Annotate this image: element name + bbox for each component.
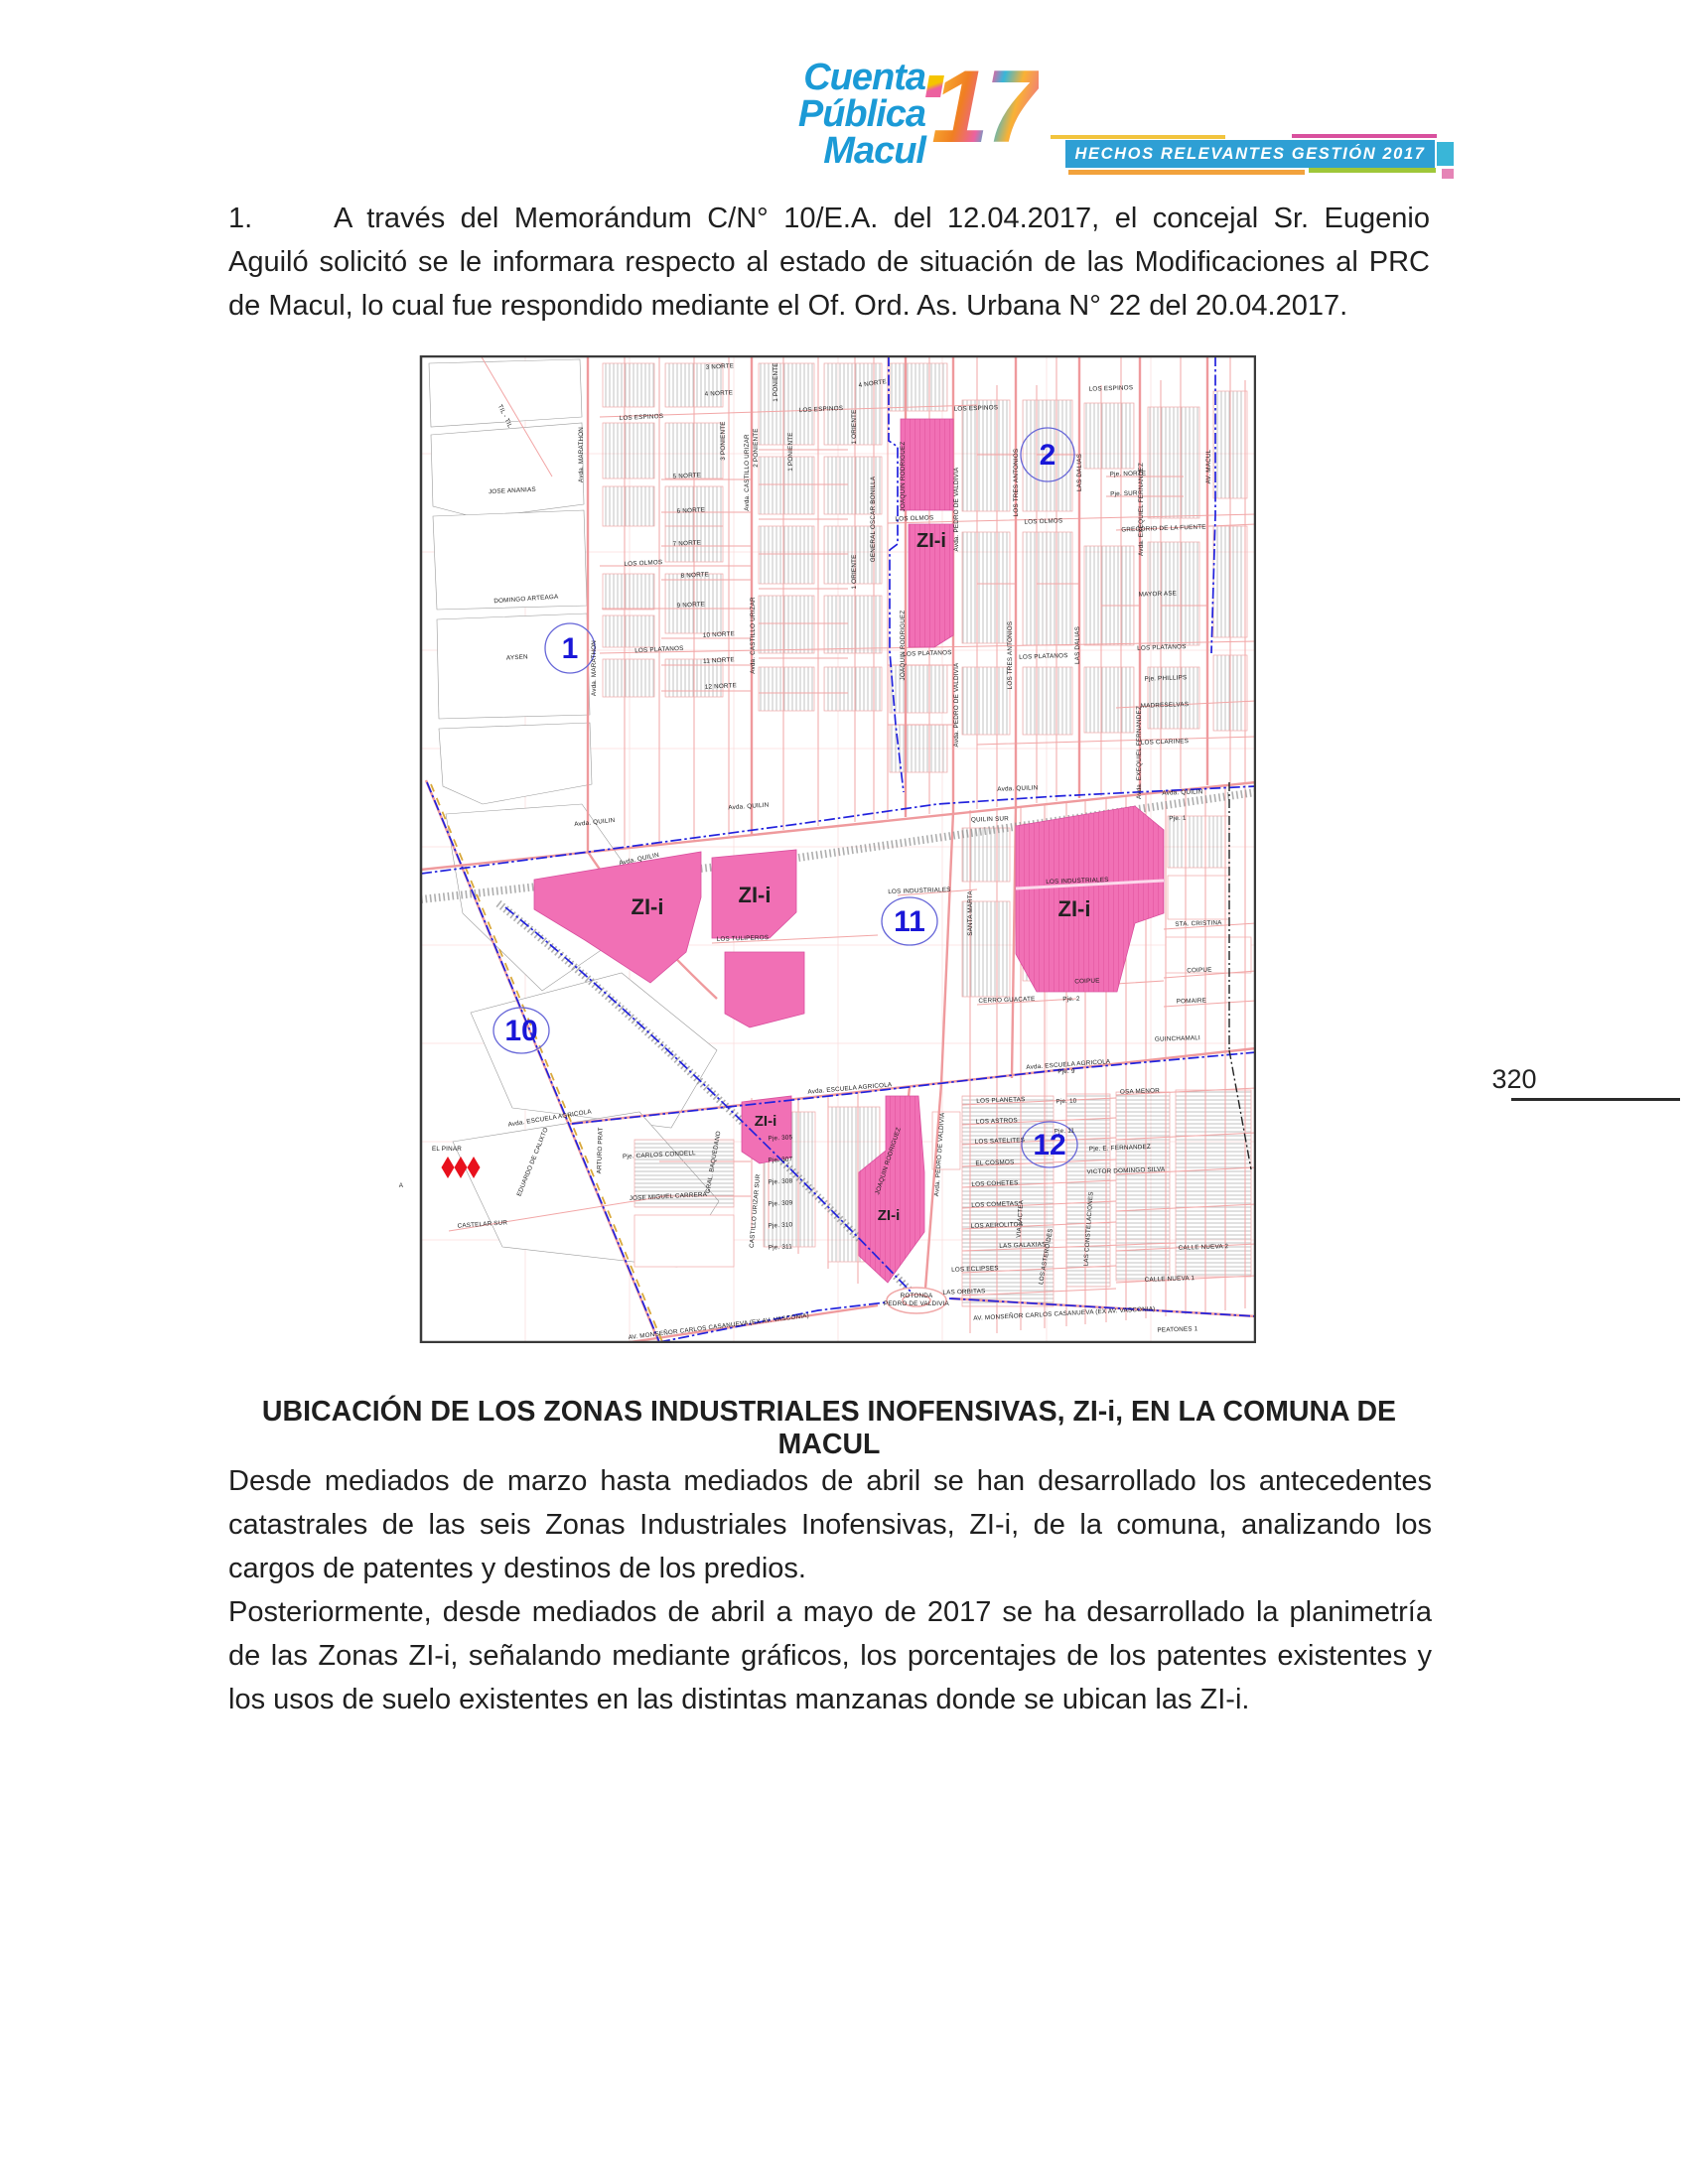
street-label: Avda. QUILIN — [997, 784, 1039, 792]
banner-accent-orange — [1068, 170, 1305, 175]
el-pinar-diamonds — [442, 1157, 481, 1178]
zone-label: ZI-i — [739, 883, 772, 907]
street-label: AV. MACUL — [1205, 449, 1212, 483]
street-label: PEATONES 1 — [1157, 1325, 1197, 1333]
street-label: Pje. SUR — [1110, 490, 1138, 498]
street-label: LAS DALIAS — [1074, 626, 1081, 664]
banner-text: HECHOS RELEVANTES GESTIÓN 2017 — [1074, 145, 1425, 164]
street-label: POMAIRE — [1177, 997, 1207, 1005]
street-label: LOS OLMOS — [1024, 517, 1062, 525]
street-label: OSA MENOR — [1120, 1087, 1160, 1095]
street-label: Avda. CASTILLO URIZAR — [750, 597, 757, 674]
street-label: 5 NORTE — [672, 472, 701, 479]
street-label: A — [399, 1182, 404, 1189]
street-label: LAS DALIAS — [1076, 454, 1083, 491]
street-label: Avda. QUILIN — [1162, 788, 1203, 796]
street-label: Pje. 2 — [1062, 996, 1080, 1004]
street-label: Avda. EXEQUIEL FERNANDEZ — [1136, 706, 1143, 799]
logo-line-2: Pública — [798, 93, 925, 135]
street-label: 1 ORIENTE — [851, 554, 858, 589]
map-caption-title: UBICACIÓN DE LOS ZONAS INDUSTRIALES INOF… — [228, 1396, 1430, 1461]
street-label: JOAQUIN RODRIGUEZ — [900, 611, 907, 681]
street-label: Pje. NORTE — [1110, 470, 1147, 478]
street-label: GENERAL OSCAR BONILLA — [870, 476, 877, 562]
street-label: LOS OLMOS — [895, 514, 933, 522]
district-number: 11 — [894, 905, 925, 938]
street-label: Avda. CASTILLO URIZAR — [744, 434, 751, 511]
street-label: AYSEN — [506, 653, 528, 661]
street-label: Pje. 10 — [1055, 1098, 1077, 1106]
street-label: Pje. 309 — [768, 1199, 792, 1207]
street-label: 2 PONIENTE — [753, 428, 760, 467]
body-paragraph-2: Posteriormente, desde mediados de abril … — [228, 1590, 1432, 1721]
street-label: 1 PONIENTE — [773, 362, 779, 401]
district-number: 1 — [562, 632, 579, 665]
street-label: 3 PONIENTE — [720, 421, 727, 460]
street-label: 3 NORTE — [705, 362, 734, 370]
street-label: 1 PONIENTE — [787, 432, 794, 471]
street-label: Pje. 1 — [1169, 815, 1187, 823]
banner-accent-yellow — [1051, 135, 1225, 139]
street-label: Pje. PHILLIPS — [1144, 674, 1187, 682]
street-label: 9 NORTE — [676, 601, 705, 609]
street-label: Avda. PEDRO DE VALDIVIA — [953, 662, 960, 747]
page-number: 320 — [1460, 1064, 1569, 1095]
macul-zoning-map: ZI-iZI-iZI-iZI-iZI-iZI-i 12101112 TIL - … — [391, 355, 1256, 1343]
logo-line-1: Cuenta — [803, 57, 925, 98]
street-label: LOS TRES ANTONIOS — [1013, 449, 1020, 517]
street-label: Pje. 9 — [1057, 1068, 1075, 1076]
zoning-map-figure: ZI-iZI-iZI-iZI-iZI-iZI-i 12101112 TIL - … — [391, 355, 1256, 1343]
logo-line-3: Macul — [823, 130, 925, 172]
street-label: 7 NORTE — [672, 539, 701, 547]
street-label: 8 NORTE — [680, 571, 709, 579]
header-banner: HECHOS RELEVANTES GESTIÓN 2017 — [1065, 140, 1435, 168]
street-label: COIPUE — [1187, 967, 1212, 975]
street-label: MAYOR ASE — [1139, 590, 1178, 598]
street-label: Pje. 311 — [769, 1243, 793, 1251]
zone-label: ZI-i — [1058, 896, 1091, 921]
street-label: Avda. PEDRO DE VALDIVIA — [953, 467, 960, 551]
banner-accent-teal-square — [1437, 142, 1454, 166]
banner-accent-pink-square — [1442, 169, 1454, 179]
street-label: Pje. 310 — [768, 1221, 792, 1229]
logo-year-17: 17 — [931, 44, 1039, 183]
body-text: Desde mediados de marzo hasta mediados d… — [228, 1459, 1432, 1721]
intro-paragraph: 1.A través del Memorándum C/N° 10/E.A. d… — [228, 197, 1430, 328]
street-label: SANTA MARTA — [967, 890, 974, 936]
street-label: Avda. MARATHON — [578, 427, 585, 482]
street-label: EL COSMOS — [975, 1159, 1014, 1166]
street-label: EL PINAR — [432, 1146, 462, 1153]
banner-accent-pink — [1292, 134, 1437, 138]
street-label: Pje. 11 — [1055, 1128, 1075, 1136]
district-number: 2 — [1040, 439, 1056, 472]
zone-label: ZI-i — [632, 894, 664, 919]
banner-accent-green — [1309, 168, 1436, 173]
street-label: LOS TRES ANTONIOS — [1007, 621, 1014, 690]
street-label: JOAQUIN RODRIGUEZ — [900, 442, 907, 512]
street-label: Pje. 307 — [768, 1156, 792, 1163]
document-page: Cuenta Pública Macul 17 HECHOS RELEVANTE… — [0, 0, 1688, 2184]
zone-label: ZI-i — [755, 1113, 777, 1130]
street-label: LOS ASTROS — [976, 1117, 1018, 1125]
street-label: 4 NORTE — [704, 389, 733, 397]
street-label: Pje. 305 — [768, 1134, 792, 1142]
street-label: ROTONDA — [901, 1293, 933, 1299]
street-label: 6 NORTE — [676, 506, 705, 514]
intro-text: A través del Memorándum C/N° 10/E.A. del… — [228, 203, 1430, 322]
street-label: QUILIN SUR — [971, 815, 1010, 823]
street-label: Avda. MARATHON — [591, 640, 598, 696]
district-number: 10 — [504, 1015, 537, 1047]
street-label: 1 ORIENTE — [851, 409, 858, 444]
logo-year-number: 17 — [931, 50, 1039, 165]
body-paragraph-1: Desde mediados de marzo hasta mediados d… — [228, 1459, 1432, 1590]
zone-label: ZI-i — [916, 530, 946, 552]
zone-label: ZI-i — [878, 1207, 901, 1224]
paragraph-number: 1. — [228, 197, 334, 240]
street-label: PEDRO DE VALDIVIA — [884, 1300, 950, 1307]
street-label: Pje. 308 — [768, 1177, 792, 1185]
logo-cuenta-publica-macul: Cuenta Pública Macul — [737, 60, 925, 170]
street-label: COIPUE — [1074, 978, 1100, 986]
page-number-rule — [1511, 1098, 1680, 1101]
